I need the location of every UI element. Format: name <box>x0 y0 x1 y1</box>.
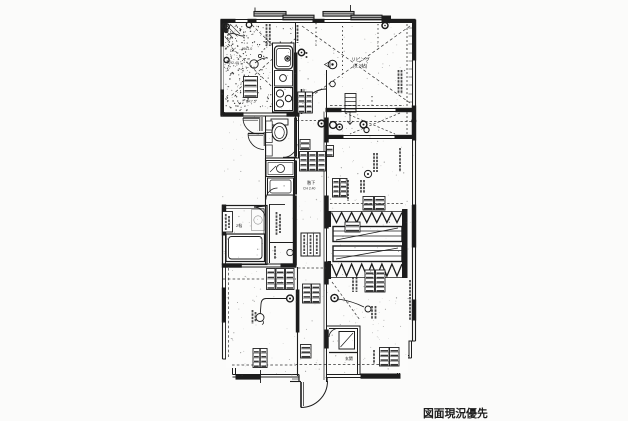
svg-text:玄関: 玄関 <box>345 356 353 361</box>
svg-text:リビング: リビング <box>351 56 370 63</box>
svg-text:2帖: 2帖 <box>236 222 242 228</box>
svg-text:(8.2帖): (8.2帖) <box>353 63 368 70</box>
svg-text:DK: DK <box>230 49 236 53</box>
svg-text:CH 2.40: CH 2.40 <box>303 187 316 191</box>
svg-text:4511.0: 4511.0 <box>242 47 253 51</box>
svg-text:階下: 階下 <box>307 179 315 185</box>
